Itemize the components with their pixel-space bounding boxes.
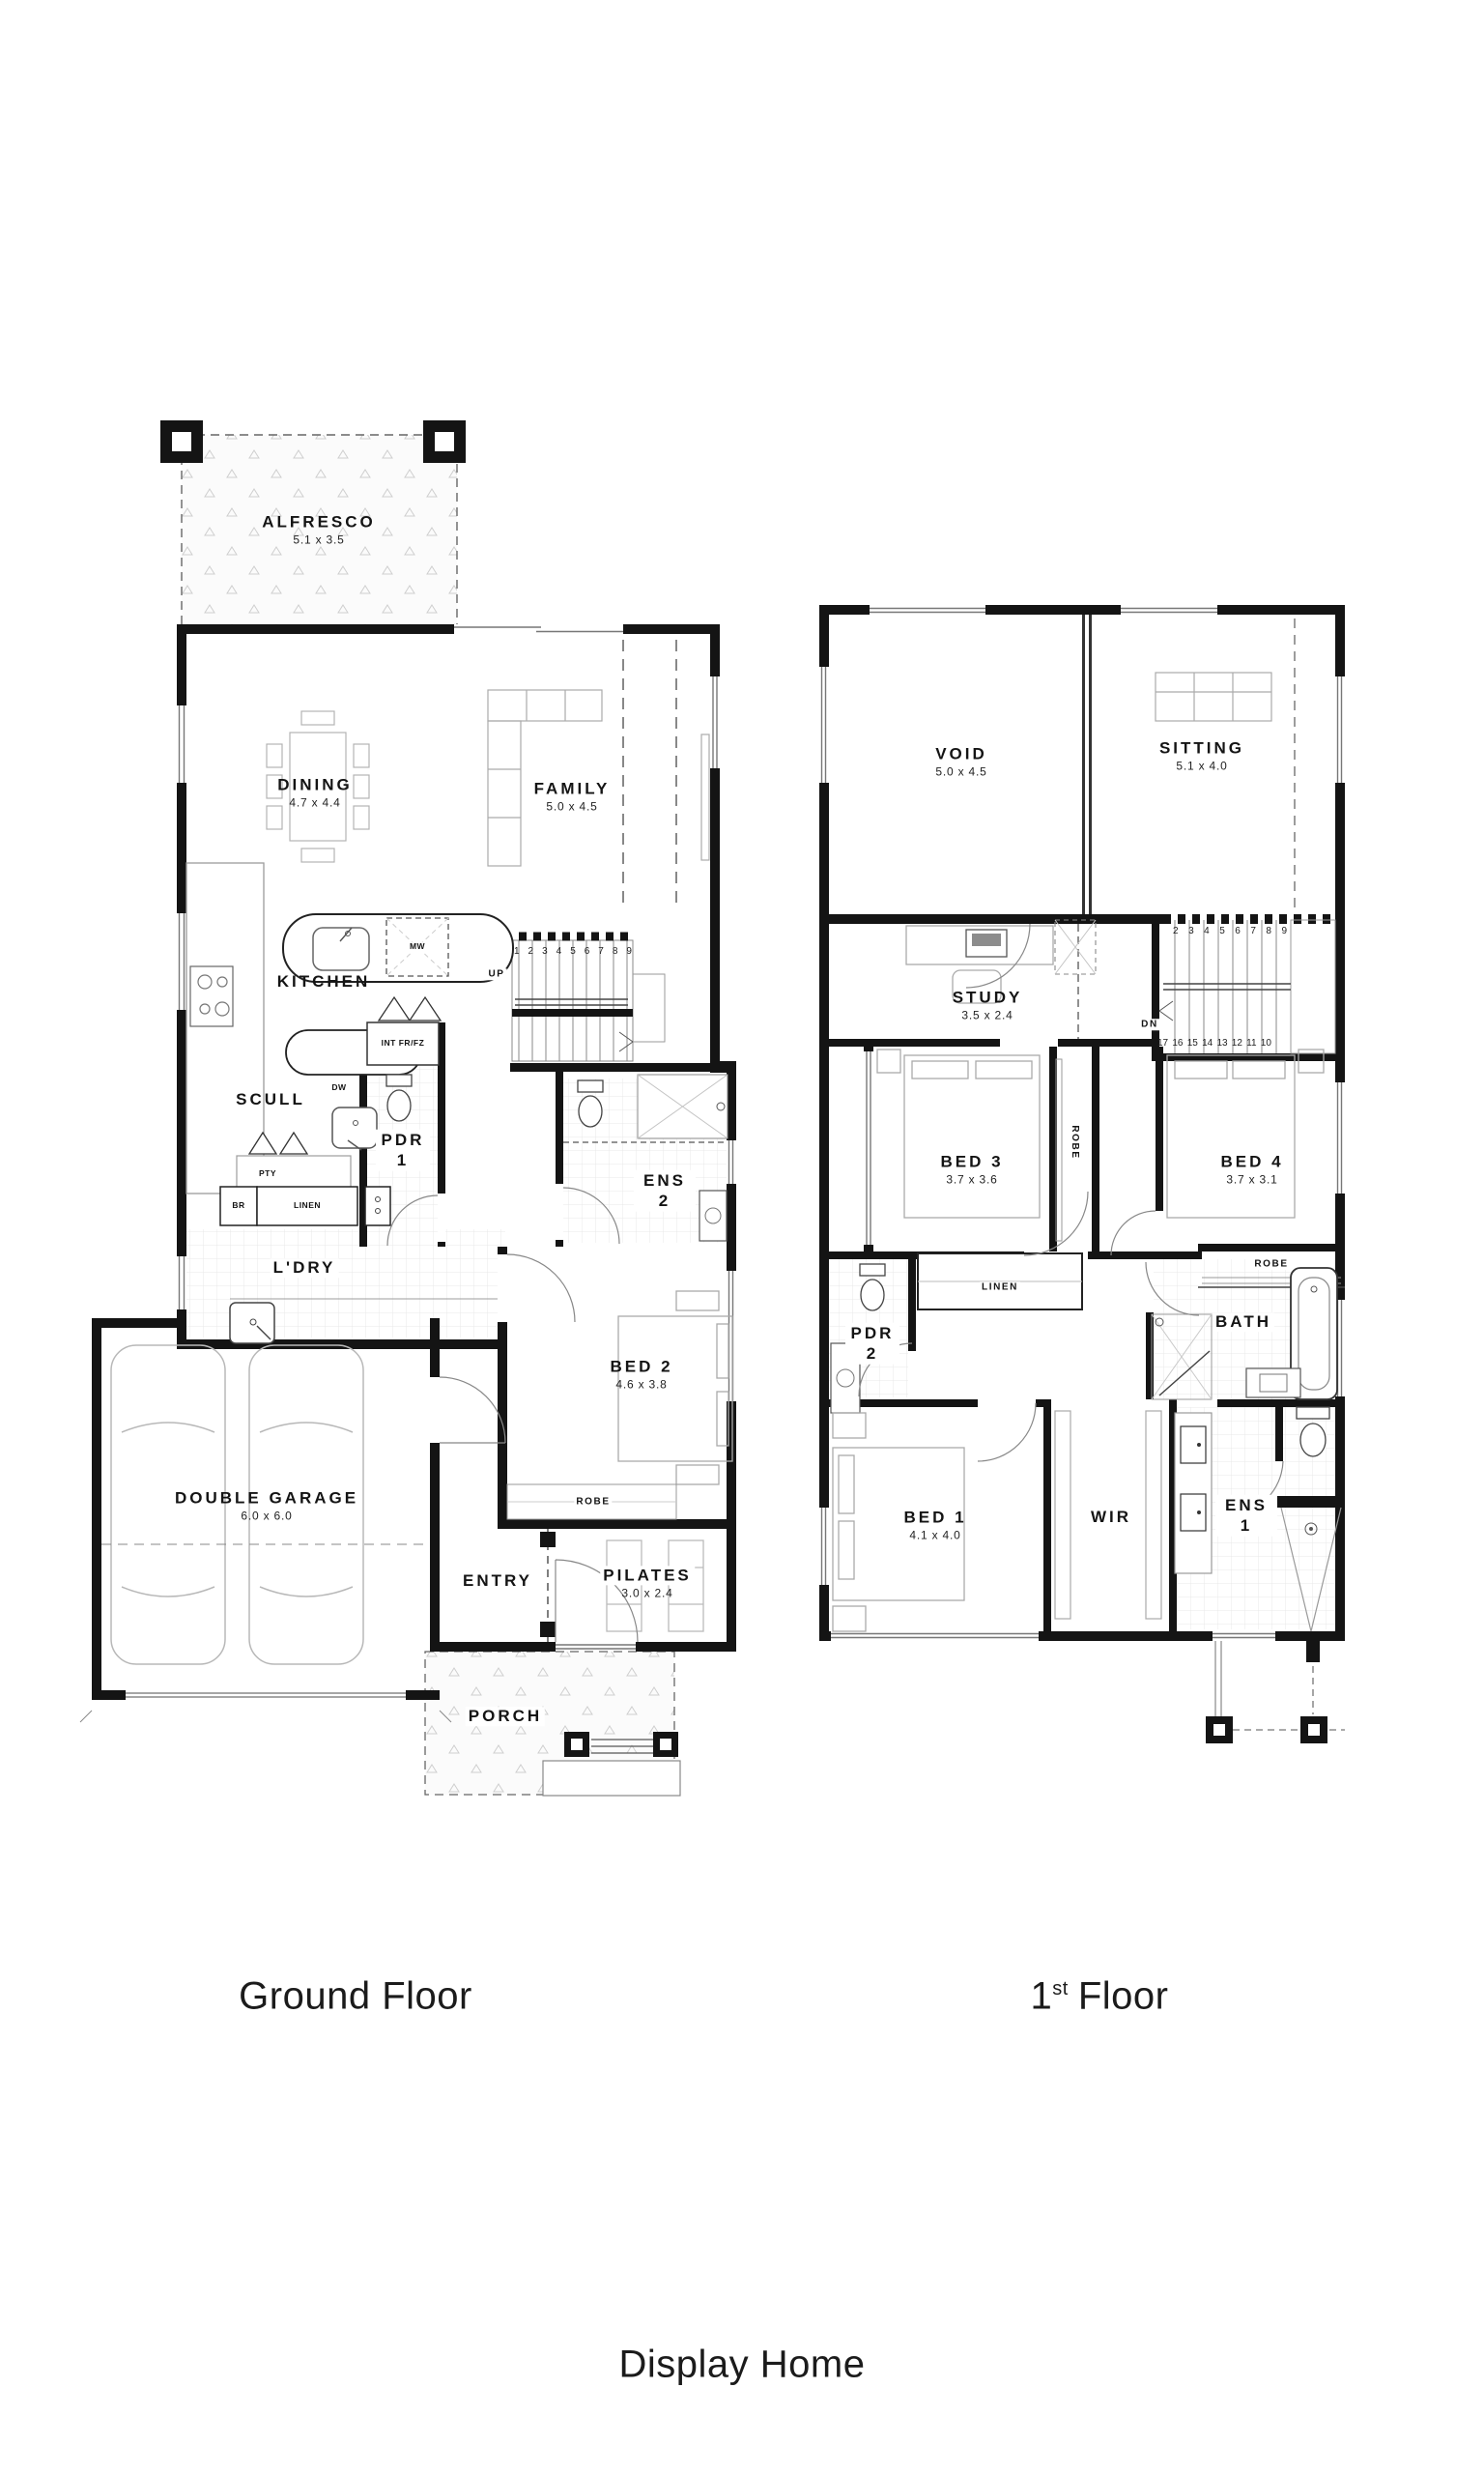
caption-ground-floor: Ground Floor bbox=[239, 1975, 472, 2019]
room-label-study: STUDY 3.5 x 2.4 bbox=[953, 988, 1023, 1021]
label-stairs-up: UP bbox=[486, 968, 506, 980]
room-label-garage: DOUBLE GARAGE 6.0 x 6.0 bbox=[175, 1488, 358, 1522]
stair-numbers-first-down: 1716151413121110 bbox=[1157, 1036, 1271, 1050]
room-label-pdr1: PDR 1 bbox=[376, 1130, 430, 1171]
room-label-bed2: BED 2 4.6 x 3.8 bbox=[610, 1357, 672, 1391]
room-label-kitchen: KITCHEN bbox=[277, 972, 371, 992]
caption-first-floor: 1stFloor bbox=[1031, 1975, 1169, 2019]
room-label-pilates: PILATES 3.0 x 2.4 bbox=[600, 1566, 695, 1599]
floor-plan-drawing bbox=[0, 0, 1484, 2474]
room-label-laundry: L'DRY bbox=[271, 1258, 339, 1278]
room-label-pdr2: PDR 2 bbox=[845, 1323, 899, 1365]
room-label-wir: WIR bbox=[1091, 1508, 1131, 1527]
label-stairs-down: DN bbox=[1139, 1019, 1160, 1030]
label-robe-bed3: ROBE bbox=[1069, 1123, 1080, 1161]
room-label-sitting: SITTING 5.1 x 4.0 bbox=[1159, 738, 1244, 772]
stair-numbers-first-up: 23456789 bbox=[1173, 924, 1287, 937]
label-dishwasher: DW bbox=[330, 1083, 347, 1093]
label-pantry: PTY bbox=[258, 1169, 277, 1179]
label-integrated-fridge: INT FR/FZ bbox=[381, 1039, 426, 1049]
caption-first-floor-text: Floor bbox=[1078, 1975, 1169, 2018]
room-label-bed4: BED 4 3.7 x 3.1 bbox=[1220, 1152, 1283, 1186]
room-label-family: FAMILY 5.0 x 4.5 bbox=[534, 779, 611, 813]
label-microwave: MW bbox=[409, 942, 426, 952]
label-broom-cupboard: BR bbox=[231, 1201, 245, 1211]
label-robe-bed4: ROBE bbox=[1252, 1258, 1290, 1270]
caption-first-floor-number: 1 bbox=[1031, 1975, 1053, 2018]
room-label-bath: BATH bbox=[1213, 1312, 1274, 1332]
floor-plan-page: ALFRESCO 5.1 x 3.5 DINING 4.7 x 4.4 FAMI… bbox=[0, 0, 1484, 2474]
room-label-porch: PORCH bbox=[466, 1707, 545, 1726]
room-label-alfresco: ALFRESCO 5.1 x 3.5 bbox=[262, 512, 376, 546]
room-label-dining: DINING 4.7 x 4.4 bbox=[277, 775, 353, 809]
room-label-bed1: BED 1 4.1 x 4.0 bbox=[903, 1508, 966, 1541]
room-label-void: VOID 5.0 x 4.5 bbox=[935, 744, 987, 778]
page-title: Display Home bbox=[619, 2344, 866, 2387]
label-robe-bed2: ROBE bbox=[574, 1496, 612, 1508]
caption-first-floor-ordinal: st bbox=[1052, 1978, 1069, 1999]
room-label-ens2: ENS 2 bbox=[634, 1170, 696, 1212]
stair-numbers-ground: 123456789 bbox=[514, 944, 632, 958]
room-label-scullery: SCULL bbox=[236, 1090, 305, 1109]
room-label-bed3: BED 3 3.7 x 3.6 bbox=[940, 1152, 1003, 1186]
label-linen-first: LINEN bbox=[980, 1281, 1020, 1293]
label-linen-ground: LINEN bbox=[293, 1201, 322, 1211]
room-label-entry: ENTRY bbox=[463, 1571, 532, 1591]
room-label-ens1: ENS 1 bbox=[1215, 1495, 1277, 1537]
